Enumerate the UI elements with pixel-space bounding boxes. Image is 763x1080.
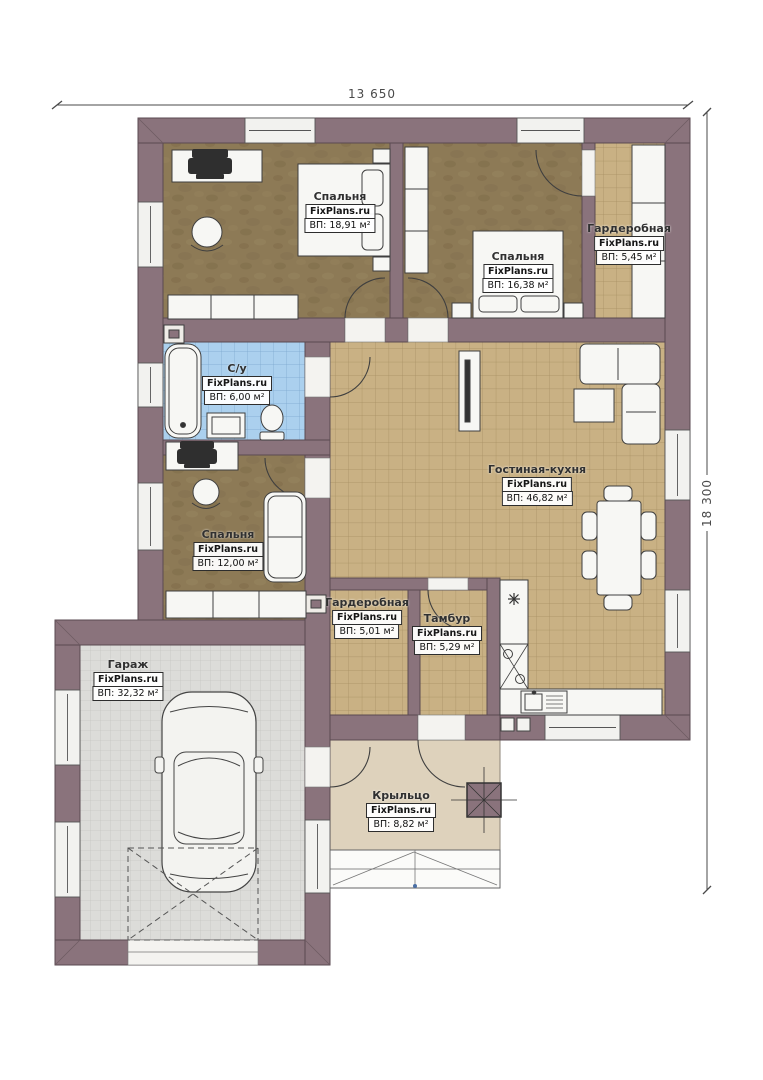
coffee-table (574, 389, 614, 422)
room-area: ВП: 6,00 м² (204, 390, 269, 405)
room-label-wardrobe-top: Гардеробная FixPlans.ru ВП: 5,45 м² (587, 222, 671, 265)
brand-watermark: FixPlans.ru (594, 236, 664, 251)
corner-sofa-side (622, 384, 660, 444)
wall-vestibule-top (330, 578, 500, 590)
room-area: ВП: 5,29 м² (414, 640, 479, 655)
wardrobe-cabinet (405, 147, 428, 273)
wall-top (138, 118, 690, 143)
toilet (261, 405, 283, 431)
dining-table (597, 501, 641, 595)
room-area: ВП: 12,00 м² (192, 556, 263, 571)
wall-bedrooms-bottom-2 (385, 318, 408, 342)
vent-shaft-core (169, 330, 179, 338)
garage-gate-opening (128, 940, 258, 965)
toilet-tank (260, 432, 284, 440)
wall-bedrooms-bottom-3 (448, 318, 665, 342)
room-name: Гардеробная (325, 596, 409, 609)
wall-vestibule-right (487, 578, 500, 715)
room-label-wardrobe-bottom: Гардеробная FixPlans.ru ВП: 5,01 м² (325, 596, 409, 639)
room-area: ВП: 8,82 м² (368, 817, 433, 832)
car-roof (174, 752, 244, 844)
room-name: Гостиная-кухня (488, 463, 586, 476)
room-area: ВП: 32,32 м² (92, 686, 163, 701)
dining-chair (641, 551, 656, 579)
brand-watermark: FixPlans.ru (483, 264, 553, 279)
dining-chair (604, 486, 632, 501)
stair-marker (413, 884, 417, 888)
brand-watermark: FixPlans.ru (202, 376, 272, 391)
brand-watermark: FixPlans.ru (366, 803, 436, 818)
faucet (532, 691, 536, 695)
dining-chair (582, 512, 597, 540)
room-label-bathroom: С/у FixPlans.ru ВП: 6,00 м² (202, 362, 272, 405)
door-opening-garage-porch (305, 747, 330, 787)
room-label-vestibule: Тамбур FixPlans.ru ВП: 5,29 м² (412, 612, 482, 655)
room-name: Спальня (192, 528, 263, 541)
room-name: С/у (202, 362, 272, 375)
room-label-bedroom-1: Спальня FixPlans.ru ВП: 18,91 м² (304, 190, 375, 233)
room-name: Крыльцо (366, 789, 436, 802)
brand-watermark: FixPlans.ru (193, 542, 263, 557)
pillow (479, 296, 517, 312)
room-name: Спальня (482, 250, 553, 263)
vent-square (517, 718, 530, 731)
door-opening-vestibule (428, 578, 468, 590)
pillow (521, 296, 559, 312)
brand-watermark: FixPlans.ru (502, 477, 572, 492)
wall-bedroom-partition (390, 143, 403, 318)
closet-row (166, 591, 306, 618)
vent-square (501, 718, 514, 731)
room-label-bedroom-2: Спальня FixPlans.ru ВП: 16,38 м² (482, 250, 553, 293)
dining-chair (604, 595, 632, 610)
room-name: Гардеробная (587, 222, 671, 235)
door-opening-bedroom-3 (305, 458, 330, 498)
dimension-height-label: 18 300 (700, 475, 714, 531)
dining-chair (582, 551, 597, 579)
car-mirror (254, 757, 263, 773)
vent-shaft-core (311, 600, 321, 608)
corner-sofa-top (580, 344, 660, 384)
floor-plan-drawing (0, 0, 763, 1080)
room-label-garage: Гараж FixPlans.ru ВП: 32,32 м² (92, 658, 163, 701)
wall-bottom-left (330, 715, 418, 740)
closet-row (168, 295, 298, 319)
room-name: Спальня (304, 190, 375, 203)
room-area: ВП: 16,38 м² (482, 278, 553, 293)
room-area: ВП: 5,45 м² (596, 250, 661, 265)
room-area: ВП: 5,01 м² (334, 624, 399, 639)
nightstand (452, 303, 471, 318)
chair (193, 479, 219, 505)
brand-watermark: FixPlans.ru (412, 626, 482, 641)
door-opening-bathroom (305, 357, 330, 397)
room-name: Гараж (92, 658, 163, 671)
room-area: ВП: 18,91 м² (304, 218, 375, 233)
car-mirror (155, 757, 164, 773)
dimension-width-label: 13 650 (344, 87, 400, 101)
chair (192, 217, 222, 247)
door-opening-wardrobe-top (582, 150, 595, 196)
car (155, 692, 263, 892)
printer-icon (177, 441, 217, 468)
wall-bedrooms-bottom-1 (163, 318, 345, 342)
door-opening-entrance (418, 715, 465, 740)
room-area: ВП: 46,82 м² (501, 491, 572, 506)
brand-watermark: FixPlans.ru (93, 672, 163, 687)
tv (465, 360, 470, 422)
room-name: Тамбур (412, 612, 482, 625)
bathtub-drain (181, 423, 186, 428)
nightstand (564, 303, 583, 318)
wall-bottom-mid (465, 715, 500, 740)
brand-watermark: FixPlans.ru (332, 610, 402, 625)
room-label-bedroom-3: Спальня FixPlans.ru ВП: 12,00 м² (192, 528, 263, 571)
door-opening-bedroom-2 (408, 318, 448, 342)
wall-wardrobe-stub (582, 143, 595, 150)
brand-watermark: FixPlans.ru (305, 204, 375, 219)
room-label-living-kitchen: Гостиная-кухня FixPlans.ru ВП: 46,82 м² (488, 463, 586, 506)
door-opening-bedroom-1 (345, 318, 385, 342)
hood-star-icon (508, 593, 520, 605)
wall-garage-top (55, 620, 330, 645)
nightstand (373, 149, 390, 163)
dining-chair (641, 512, 656, 540)
nightstand (373, 257, 390, 271)
room-label-porch: Крыльцо FixPlans.ru ВП: 8,82 м² (366, 789, 436, 832)
floor-plan-page: 13 650 18 300 Спальня FixPlans.ru ВП: 18… (0, 0, 763, 1080)
